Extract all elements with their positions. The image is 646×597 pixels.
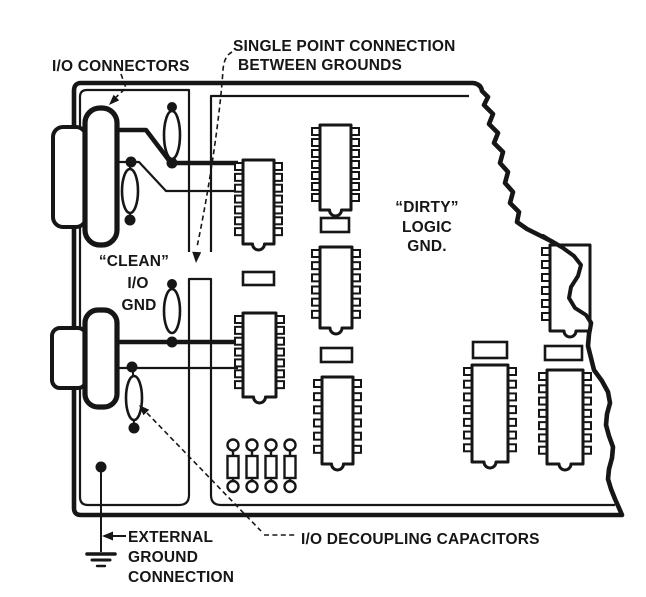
ic-body xyxy=(547,370,583,470)
feedthrough-capacitor xyxy=(164,111,180,159)
junction-dot xyxy=(167,279,177,289)
decoupling-capacitor xyxy=(243,272,274,285)
ic-chip xyxy=(235,160,282,250)
discrete-capacitor xyxy=(285,440,296,493)
ic-chip xyxy=(542,245,590,337)
discrete-capacitor xyxy=(247,440,258,493)
label-single-point-1: SINGLE POINT CONNECTION xyxy=(233,38,455,55)
junction-dot xyxy=(125,215,136,226)
label-decoupling-capacitors: I/O DECOUPLING CAPACITORS xyxy=(301,531,540,548)
io-connectors-leader xyxy=(113,74,126,100)
junction-dot xyxy=(167,158,178,169)
earth-ground-icon xyxy=(87,554,115,566)
junction-dot xyxy=(167,102,177,112)
label-io-connectors: I/O CONNECTORS xyxy=(52,58,190,75)
label-dirty-gnd-2: LOGIC xyxy=(402,219,452,236)
ic-body xyxy=(243,160,274,250)
io-connector-top-outer xyxy=(53,127,86,227)
diagram-canvas: I/O CONNECTORS SINGLE POINT CONNECTION B… xyxy=(0,0,646,597)
label-clean-gnd-2: I/O xyxy=(127,275,148,292)
decoupling-capacitor xyxy=(545,346,582,360)
label-external-ground-2: GROUND xyxy=(128,549,198,566)
io-connector-top-body xyxy=(85,108,117,245)
io-connector-bottom xyxy=(52,310,117,407)
pcb-grounding-diagram: I/O CONNECTORS SINGLE POINT CONNECTION B… xyxy=(0,0,646,597)
ic-chip xyxy=(235,313,284,403)
io-connector-bottom-body xyxy=(85,310,117,407)
feedthrough-capacitor xyxy=(126,376,142,420)
io-connector-bottom-outer xyxy=(52,328,86,388)
label-dirty-gnd-1: “DIRTY” xyxy=(395,199,458,216)
junction-dot xyxy=(96,462,107,473)
label-single-point-2: BETWEEN GROUNDS xyxy=(238,57,402,74)
decoupling-capacitor xyxy=(321,218,349,232)
feedthrough-capacitor xyxy=(122,169,138,213)
feedthrough-capacitor xyxy=(164,289,180,333)
ic-chip xyxy=(539,370,591,470)
ic-chip xyxy=(464,365,516,468)
ic-body xyxy=(320,125,351,216)
label-external-ground-1: EXTERNAL xyxy=(128,529,213,546)
ic-body xyxy=(320,247,352,334)
external-ground-arrowhead xyxy=(102,532,113,541)
junction-dot xyxy=(126,157,137,168)
decoupling-capacitor xyxy=(321,348,352,362)
ic-chip xyxy=(312,247,360,334)
discrete-capacitor xyxy=(228,440,239,493)
ic-body xyxy=(322,377,353,470)
junction-dot xyxy=(129,423,140,434)
label-clean-gnd-1: “CLEAN” xyxy=(99,253,169,270)
junction-dot xyxy=(127,362,138,373)
junction-dot xyxy=(167,337,178,348)
label-dirty-gnd-3: GND. xyxy=(407,238,447,255)
ic-body xyxy=(243,313,276,403)
discrete-capacitor xyxy=(266,440,277,493)
ic-chip xyxy=(312,125,359,216)
logic-components-layer xyxy=(228,125,592,492)
decoupling-capacitor xyxy=(473,342,507,358)
ic-body xyxy=(472,365,508,468)
single-point-arrowhead xyxy=(192,252,201,263)
ic-chip xyxy=(314,377,361,470)
label-clean-gnd-3: GND xyxy=(121,297,156,314)
io-connector-top xyxy=(53,108,117,245)
label-external-ground-3: CONNECTION xyxy=(128,569,234,586)
